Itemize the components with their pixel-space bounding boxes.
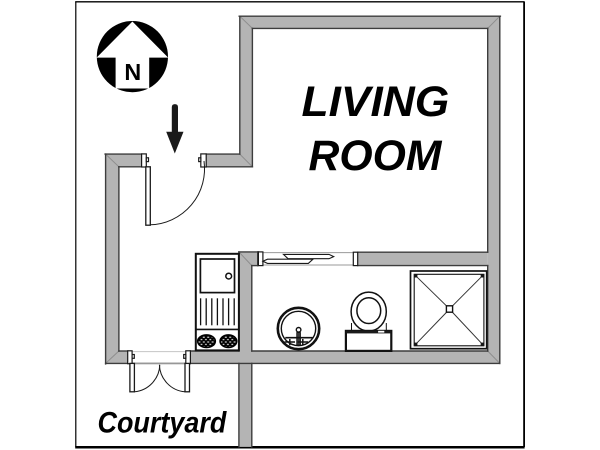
svg-text:LIVING: LIVING: [302, 78, 450, 126]
svg-text:Courtyard: Courtyard: [98, 407, 228, 440]
svg-text:N: N: [124, 59, 141, 85]
svg-text:ROOM: ROOM: [309, 132, 443, 180]
